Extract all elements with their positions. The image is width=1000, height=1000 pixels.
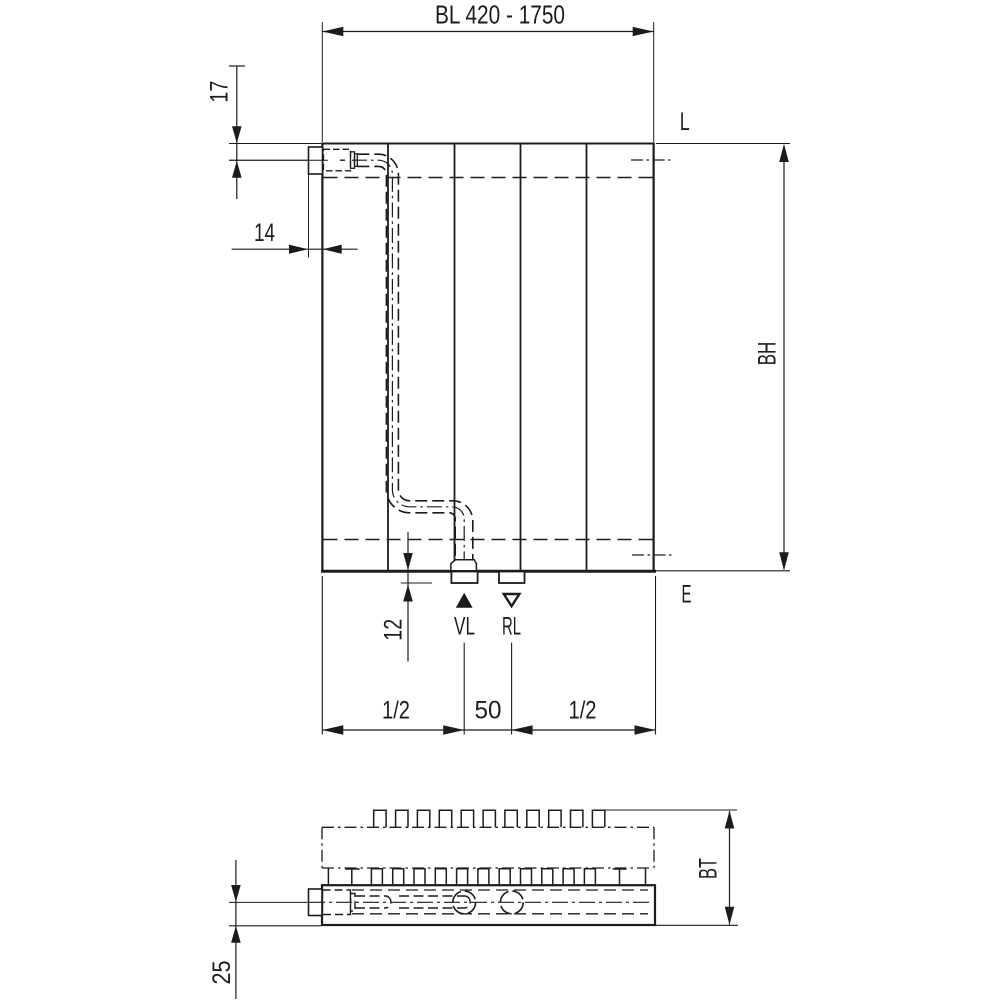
svg-text:E: E <box>682 581 692 609</box>
svg-text:1/2: 1/2 <box>382 697 410 725</box>
svg-text:BH: BH <box>754 342 782 366</box>
svg-text:17: 17 <box>206 81 234 103</box>
svg-text:VL: VL <box>454 612 475 640</box>
svg-text:L: L <box>680 108 690 136</box>
svg-text:50: 50 <box>475 697 502 725</box>
svg-text:1/2: 1/2 <box>569 697 597 725</box>
svg-text:25: 25 <box>208 961 236 985</box>
svg-text:12: 12 <box>379 619 407 641</box>
svg-text:RL: RL <box>502 612 521 640</box>
svg-text:14: 14 <box>254 219 275 247</box>
svg-text:BL 420 - 1750: BL 420 - 1750 <box>435 0 565 30</box>
svg-text:BT: BT <box>694 858 722 879</box>
